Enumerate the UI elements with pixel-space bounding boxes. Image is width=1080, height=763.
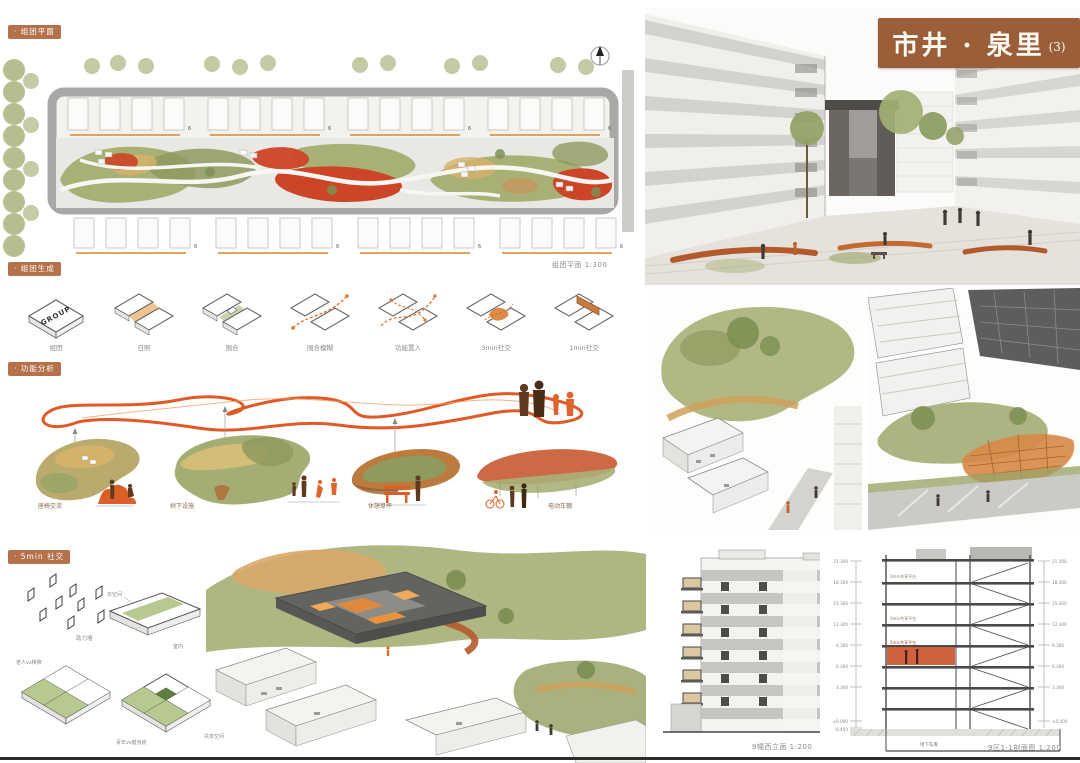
svg-text:6: 6 [188,126,191,132]
generation-step: 3min社交 [454,286,538,352]
elder-label: 老人vs棋牌 [16,659,42,666]
generation-step: 围合模糊 [278,286,362,352]
side-road [622,70,634,232]
svg-text:3min共享平台: 3min共享平台 [890,573,916,579]
svg-text:21.300: 21.300 [1052,559,1067,564]
massing-diagram-program-icon [373,286,443,340]
section-badge-site-plan: · 组团平面 [8,25,61,39]
generation-step: 功能置入 [366,286,450,352]
svg-text:3.300: 3.300 [1052,685,1064,690]
svg-text:6: 6 [620,244,623,250]
generation-step: GROUP 组团 [14,286,98,352]
generation-diagram-row: GROUP 组团 日照 围合 [14,286,632,352]
indoor-label: 室内 [173,643,183,650]
tree-canopy-icons [84,55,594,75]
massing-diagram-enclosure-icon [197,286,267,340]
shared-floor [887,647,955,665]
section-drawing: 21.30018.300 15.30012.300 9.3006.300 3.3… [820,545,1078,757]
axonometric-rendering [206,520,646,763]
housing-slabs [216,648,526,755]
function-analysis-diagram: 座椅交流 树下设施 休憩草坪 [8,370,633,518]
tree-row-icon [3,59,39,257]
svg-text:-0.450: -0.450 [835,727,849,732]
north-arrow-icon [591,46,609,65]
function-blob-lawn [352,449,460,505]
balconies [681,578,703,706]
svg-text:±0.000: ±0.000 [833,719,849,724]
svg-text:15.300: 15.300 [833,601,848,606]
svg-text:18.300: 18.300 [833,580,848,585]
cyclist-icon [486,496,504,508]
level-labels-right: 21.30018.300 15.30012.300 9.3006.300 3.3… [1052,559,1068,724]
svg-text:9.300: 9.300 [1052,643,1064,648]
svg-text:6.300: 6.300 [1052,664,1064,669]
svg-text:15.300: 15.300 [1052,601,1067,606]
section-badge-social: · 5min 社交 [8,550,70,564]
youth-block [122,674,210,732]
gray-space-label: 灰空间 [107,591,122,598]
section-badge-generation: · 组团生成 [8,262,61,276]
level-ticks-left [850,561,862,728]
massing-diagram-3min-icon [461,286,531,340]
aerial-rendering-left [648,288,862,530]
aerial-rendering-right [868,288,1080,530]
massing-diagram-1min-icon [549,286,619,340]
svg-text:3.300: 3.300 [836,685,848,690]
svg-text:6.300: 6.300 [836,664,848,669]
project-title-block: 市井 · 泉里 (3) [878,18,1080,68]
bench-icon [384,486,410,503]
youth-label: 青年vs健身房 [116,739,147,746]
elevation-caption: 9幢西立面 1:200 [752,742,812,752]
massing-diagram-sun-icon [109,286,179,340]
building-edge [834,406,862,530]
svg-text:6: 6 [608,126,611,132]
project-title: 市井 · 泉里 [892,25,1044,62]
svg-text:6: 6 [468,126,471,132]
gray-space-block [110,593,200,635]
svg-text:±0.000: ±0.000 [1052,719,1068,724]
massing-diagram-group-icon: GROUP [21,286,91,340]
svg-text:6: 6 [328,126,331,132]
svg-text:5min共享平台: 5min共享平台 [890,639,916,645]
wall-label: 助力墙 [76,634,93,642]
circulation-ribbon [43,394,582,430]
landscape-strip [56,138,614,208]
function-label: 树下设施 [170,502,194,510]
section-structure: 3min共享平台 3min共享平台 5min共享平台 地下车库 [850,547,1060,751]
function-blob-seating [36,439,140,506]
function-label: 休憩草坪 [368,502,392,510]
generation-step: 日照 [102,286,186,352]
wall-pieces-icon [28,574,104,629]
site-plan-caption: 组团平面 1:300 [552,260,607,270]
site-plan-drawing: 66 66 66 66 [0,40,640,262]
function-blob-tree [175,435,340,504]
board-bottom-edge [0,757,1080,760]
generation-step: 1min社交 [542,286,626,352]
svg-text:6: 6 [194,244,197,250]
function-label: 电动车棚 [548,502,572,510]
generation-step: 围合 [190,286,274,352]
massing-diagram-path-icon [285,286,355,340]
level-labels-left: 21.30018.300 15.30012.300 9.3006.300 3.3… [833,559,849,732]
elder-block [22,666,110,724]
svg-text:3min共享平台: 3min共享平台 [890,615,916,621]
svg-text:6: 6 [478,244,481,250]
svg-text:18.300: 18.300 [1052,580,1067,585]
level-ticks-right [1038,561,1050,728]
svg-text:12.300: 12.300 [833,622,848,627]
function-label: 座椅交流 [38,502,62,510]
svg-text:6: 6 [336,244,339,250]
section-caption: 9区1-1剖面图 1:200 [988,743,1061,753]
svg-text:21.300: 21.300 [833,559,848,564]
svg-text:12.300: 12.300 [1052,622,1067,627]
basement-label: 地下车库 [920,741,938,748]
svg-text:9.300: 9.300 [836,643,848,648]
presentation-board: · 组团平面 · 组团生成 · 功能分析 · 5min 社交 [0,0,1080,763]
function-blob-bikeshed [477,449,617,508]
project-title-number: (3) [1049,40,1066,54]
social-diagram: 助力墙 灰空间 室内 老人vs棋牌 [10,566,230,756]
